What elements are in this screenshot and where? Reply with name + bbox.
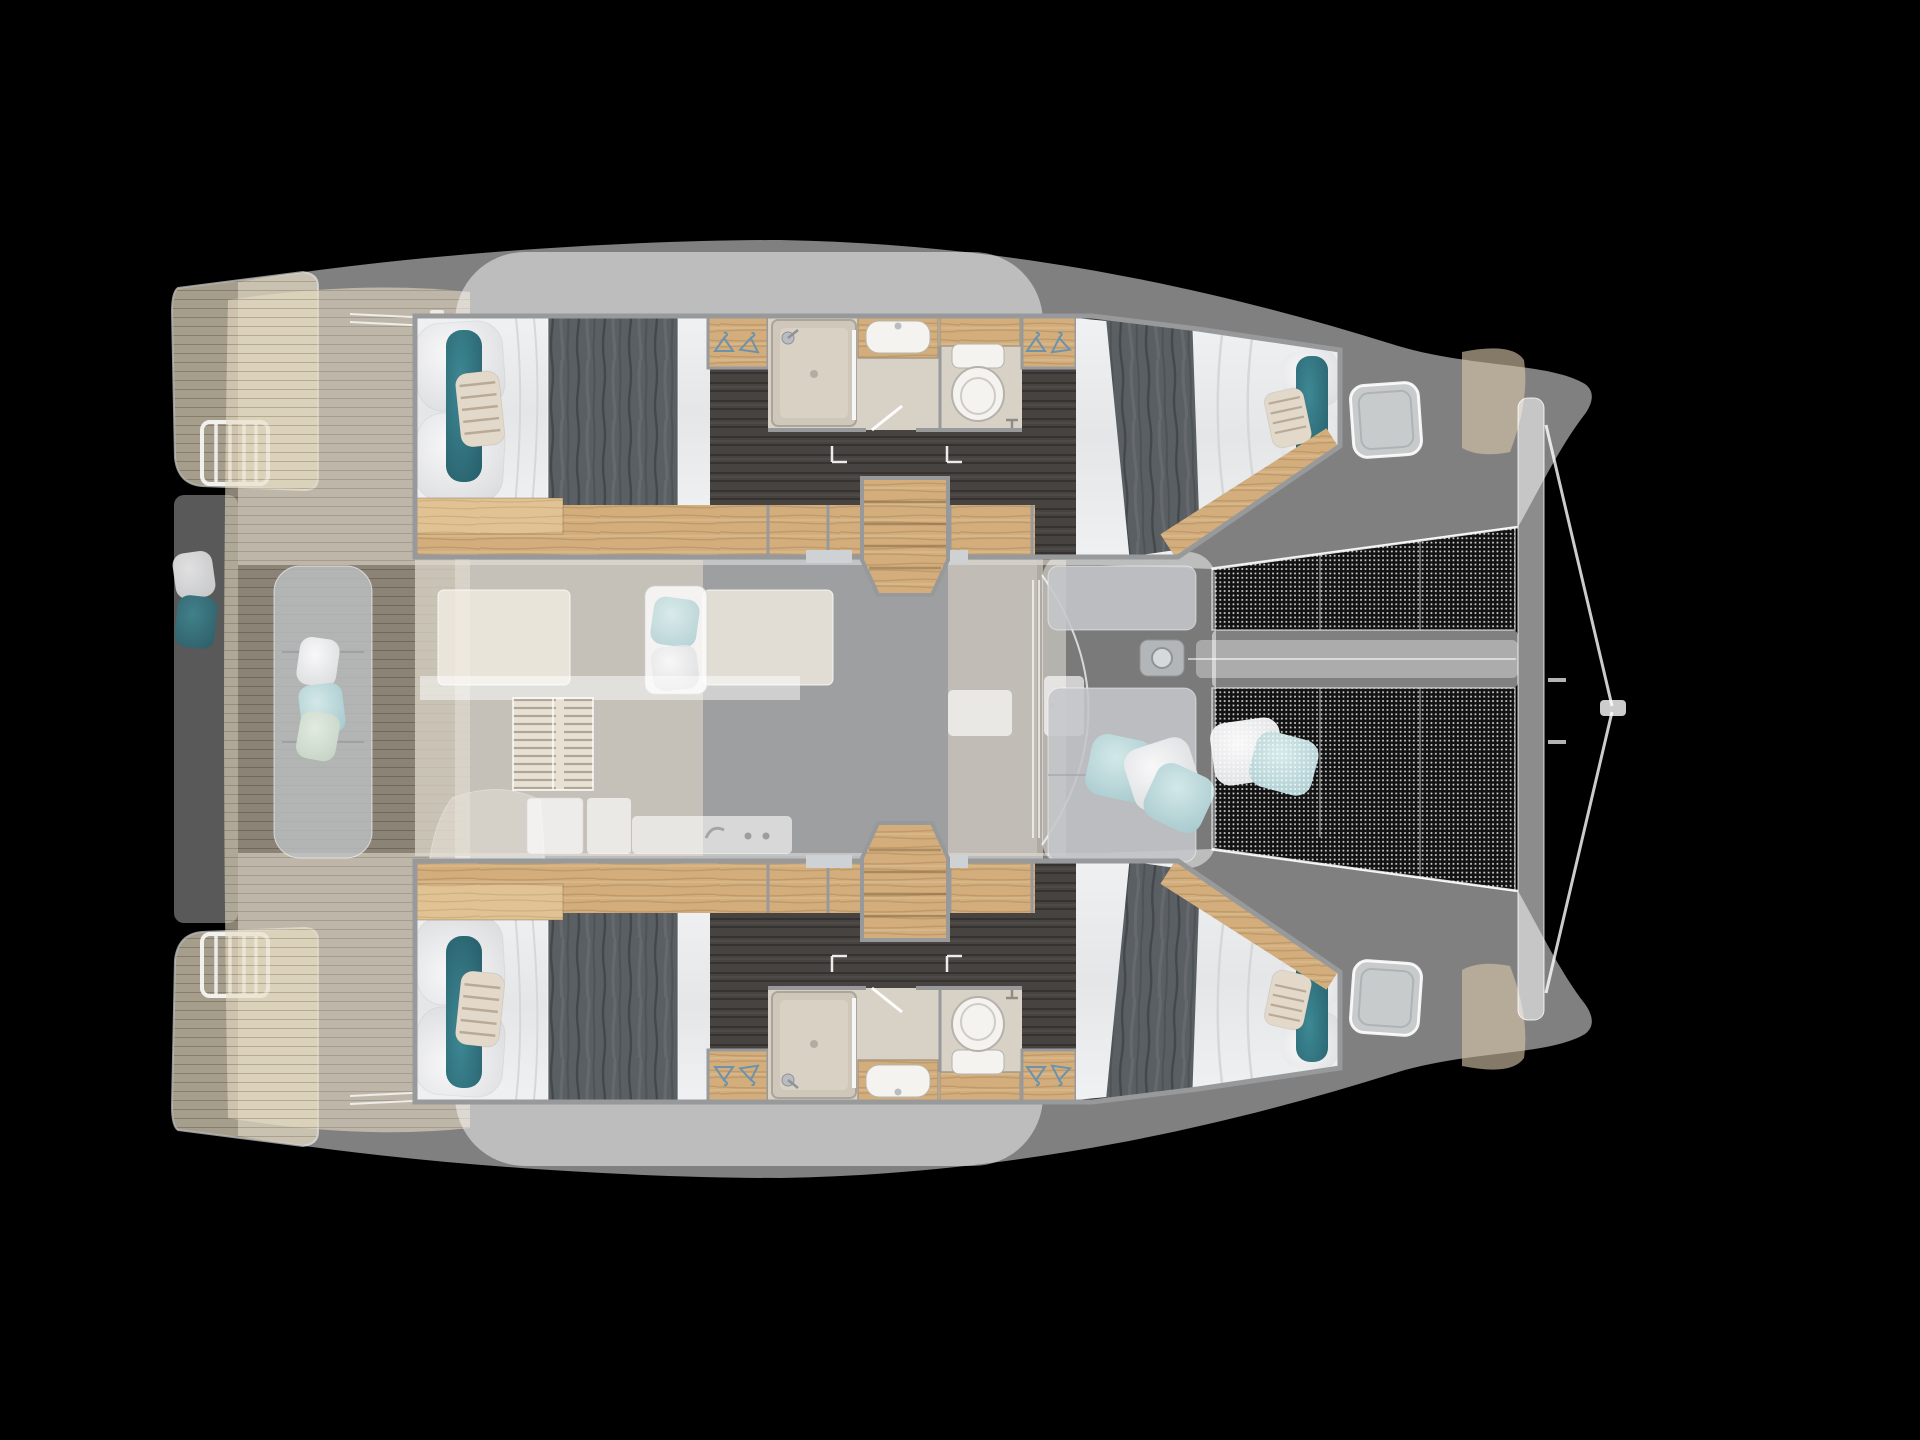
dining-table [438, 590, 570, 685]
bench-pillow-white [295, 635, 341, 688]
nav-cabinet [948, 690, 1012, 736]
cabinet-row [420, 676, 800, 700]
salon-ghost [415, 560, 1084, 856]
floor-plan-canvas: Catamaran 4-cabin / 2-head layout — top … [0, 0, 1920, 1440]
settee [703, 590, 833, 685]
louvered-hatch [513, 698, 593, 790]
galley-sink-unit [527, 798, 583, 854]
forward-crossbeam [1518, 398, 1544, 1020]
deck-hatch [1350, 382, 1423, 459]
stove-knob [745, 833, 752, 840]
cockpit-bench [274, 566, 372, 858]
galley-cabinet [587, 798, 631, 854]
stove-knob [763, 833, 770, 840]
catamaran-floor-plan: Catamaran 4-cabin / 2-head layout — top … [0, 0, 1920, 1440]
lounge-pad-port [1048, 566, 1196, 630]
bowsprit-fitting [1600, 700, 1626, 716]
anchor-windlass [1140, 640, 1184, 676]
